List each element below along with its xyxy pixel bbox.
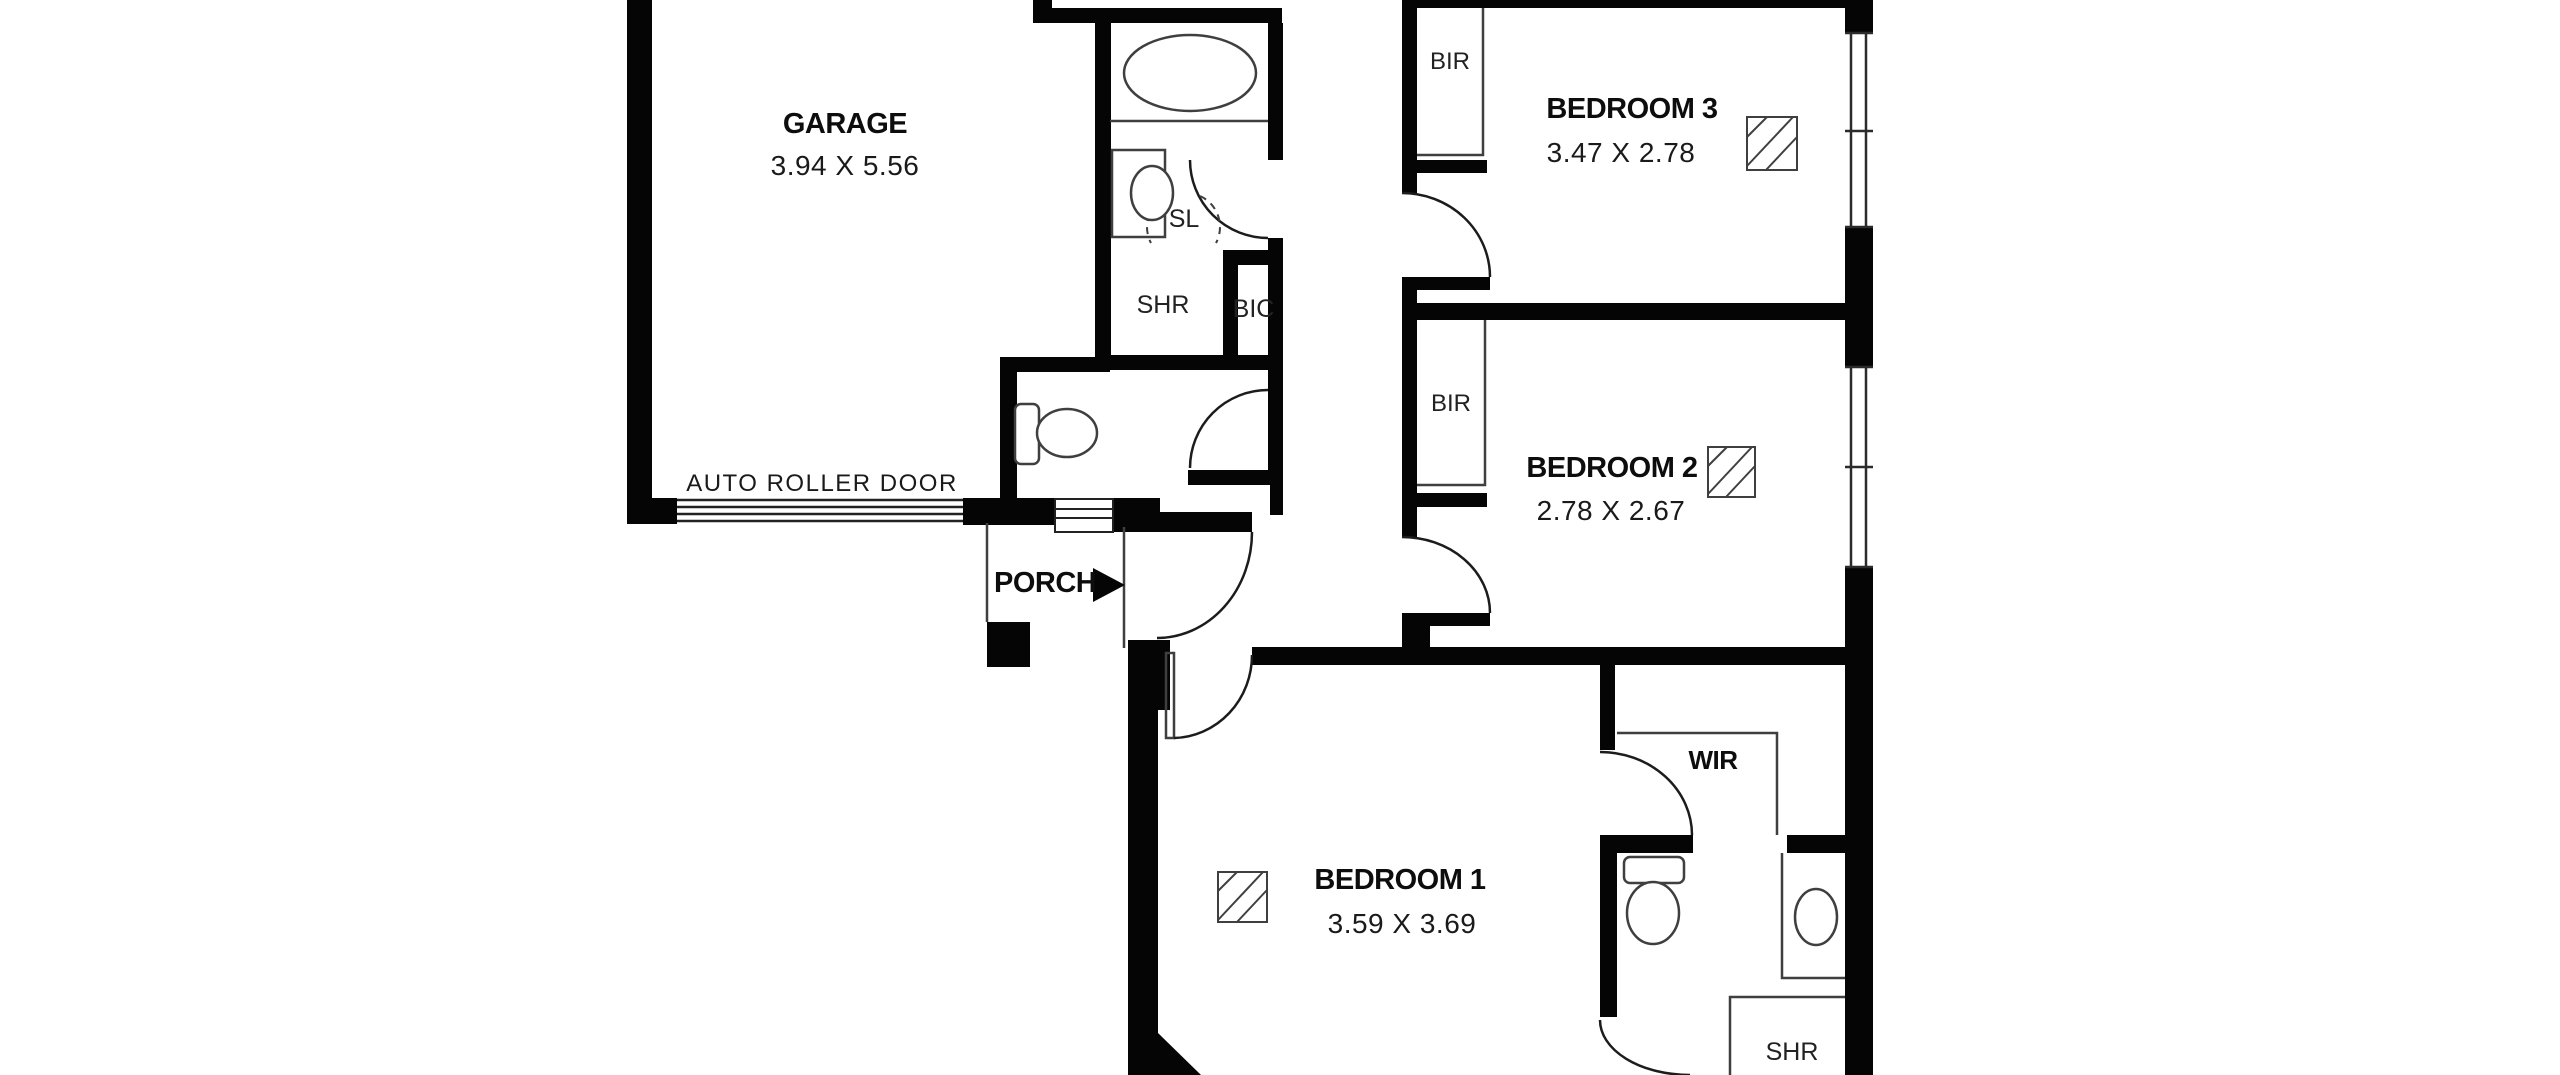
- porch-door-threshold: [1055, 499, 1113, 532]
- door-arc-bed3: [1402, 193, 1490, 277]
- ensuite-basin-icon: [1795, 889, 1837, 945]
- bathtub-icon: [1124, 35, 1256, 111]
- bir3-outline: [1417, 8, 1483, 155]
- wall-wc-north: [1000, 357, 1110, 372]
- wall-east-below-window2: [1845, 567, 1873, 647]
- entry-arrow-icon: [1093, 568, 1125, 602]
- wall-garage-bottom-left-stub: [627, 498, 677, 524]
- wall-bir2-stub: [1417, 493, 1487, 507]
- wall-garage-left: [627, 0, 652, 523]
- wall-bed2-bed3-divider: [1402, 303, 1873, 320]
- floorplan-drawing: [0, 0, 2560, 1075]
- door-arc-ensuite: [1600, 1020, 1690, 1075]
- wall-bic-north: [1223, 250, 1283, 265]
- wall-bed3-north: [1417, 0, 1873, 8]
- window-bedroom2: [1845, 367, 1873, 567]
- wall-east-lower: [1845, 647, 1873, 1075]
- roller-door-sill: [677, 500, 963, 521]
- room-label-porch: PORCH: [994, 568, 1094, 598]
- wall-garage-bath-divider: [1095, 20, 1111, 360]
- wall-bath-north: [1033, 8, 1282, 23]
- wall-entry-north: [1155, 512, 1252, 532]
- wall-hall-east-upper: [1402, 0, 1417, 193]
- room-label-wir: WIR: [1673, 747, 1753, 774]
- label-bic: BIC: [1226, 296, 1281, 322]
- wall-ensuite-west: [1600, 853, 1617, 1017]
- room-dims-garage: 3.94 X 5.56: [745, 151, 945, 180]
- wall-bath-east-lower: [1268, 238, 1283, 485]
- window-bedroom3: [1845, 33, 1873, 227]
- label-shower-main: SHR: [1133, 292, 1193, 318]
- label-bir-bedroom2: BIR: [1421, 391, 1481, 416]
- wall-bed2-west-upper: [1402, 320, 1417, 537]
- door-arc-bed1: [1174, 655, 1252, 738]
- wall-bath-east-upper: [1268, 23, 1283, 160]
- wall-shr-bottom: [1110, 355, 1283, 370]
- wall-wir-south-left: [1600, 835, 1693, 853]
- door-arc-wc: [1190, 390, 1268, 468]
- label-sl: SL: [1164, 206, 1204, 232]
- room-dims-bedroom3: 3.47 X 2.78: [1521, 138, 1721, 167]
- toilet-ensuite-icon: [1624, 857, 1684, 944]
- toilet-wc-icon: [1015, 404, 1097, 464]
- wall-porch-door-jamb: [1113, 498, 1160, 532]
- wall-bed1-diagonal: [1128, 1033, 1201, 1075]
- floorplan: GARAGE 3.94 X 5.56 BEDROOM 3 3.47 X 2.78…: [0, 0, 2560, 1075]
- door-arc-bed2: [1402, 537, 1490, 613]
- room-label-bedroom1: BEDROOM 1: [1295, 865, 1505, 895]
- room-dims-bedroom1: 3.59 X 3.69: [1302, 909, 1502, 938]
- wall-east-mid: [1845, 227, 1873, 367]
- wall-east-top: [1845, 0, 1873, 33]
- room-label-bedroom2: BEDROOM 2: [1507, 453, 1717, 483]
- label-shower-ensuite: SHR: [1762, 1039, 1822, 1065]
- porch-pillar: [987, 622, 1030, 667]
- wall-bed1-west: [1128, 640, 1158, 1033]
- ceiling-fan-bed1-icon: [1218, 872, 1267, 922]
- label-auto-roller-door: AUTO ROLLER DOOR: [672, 471, 972, 496]
- door-leaf-bed3: [1405, 277, 1490, 290]
- room-dims-bedroom2: 2.78 X 2.67: [1511, 496, 1711, 525]
- room-label-bedroom3: BEDROOM 3: [1527, 94, 1737, 124]
- wall-garage-bottom-right: [963, 498, 1060, 525]
- wall-wir-west: [1600, 660, 1615, 750]
- ceiling-fan-bed3-icon: [1747, 117, 1797, 170]
- wall-wir-south-right: [1787, 835, 1845, 853]
- room-label-garage: GARAGE: [745, 109, 945, 139]
- wall-bir3-stub: [1417, 160, 1487, 173]
- wall-bed1-north: [1252, 647, 1873, 665]
- label-bir-bedroom3: BIR: [1420, 49, 1480, 74]
- door-arc-entry: [1157, 532, 1252, 638]
